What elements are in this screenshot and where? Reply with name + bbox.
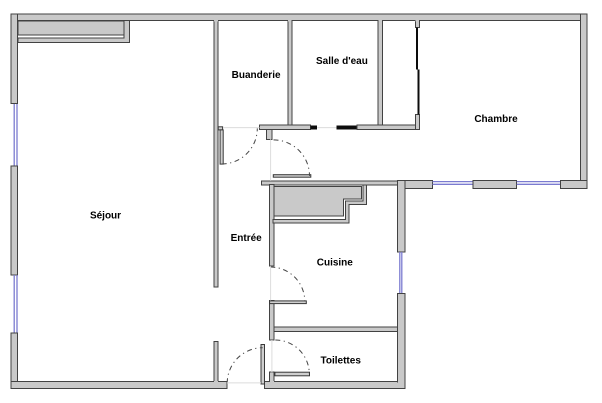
svg-text:Entrée: Entrée xyxy=(231,233,263,244)
svg-text:Chambre: Chambre xyxy=(474,114,518,125)
svg-text:Séjour: Séjour xyxy=(90,211,121,222)
svg-text:Buanderie: Buanderie xyxy=(232,70,281,81)
svg-text:Toilettes: Toilettes xyxy=(321,355,362,366)
svg-text:Cuisine: Cuisine xyxy=(317,258,354,269)
svg-text:Salle d'eau: Salle d'eau xyxy=(316,56,368,67)
